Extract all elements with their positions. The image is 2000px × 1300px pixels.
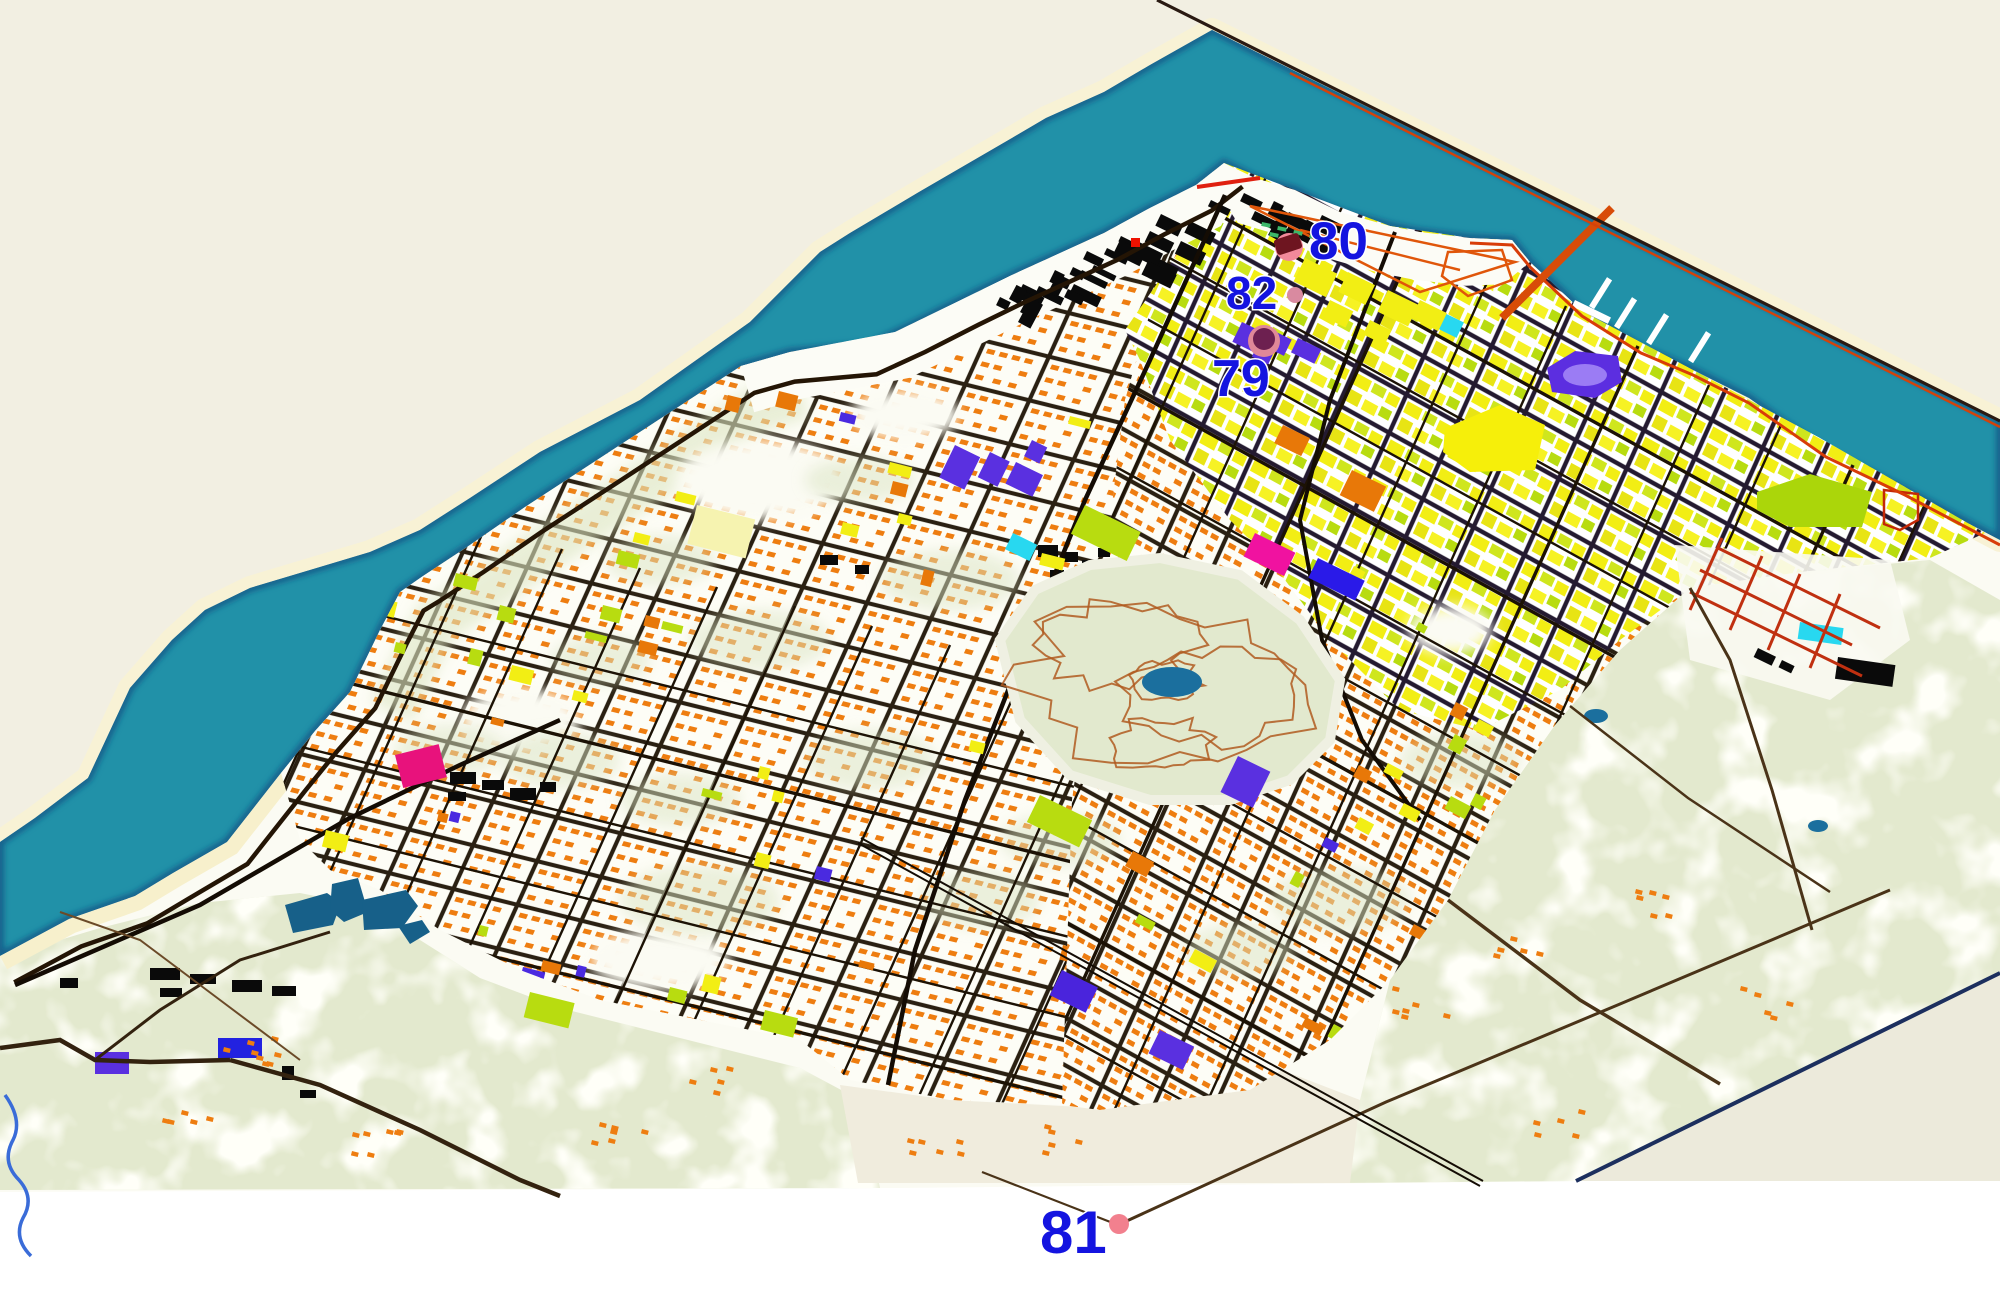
svg-text:80: 80 <box>1309 212 1368 271</box>
svg-text:81: 81 <box>1040 1199 1107 1266</box>
svg-text:79: 79 <box>1212 350 1270 408</box>
svg-text:82: 82 <box>1226 267 1277 319</box>
